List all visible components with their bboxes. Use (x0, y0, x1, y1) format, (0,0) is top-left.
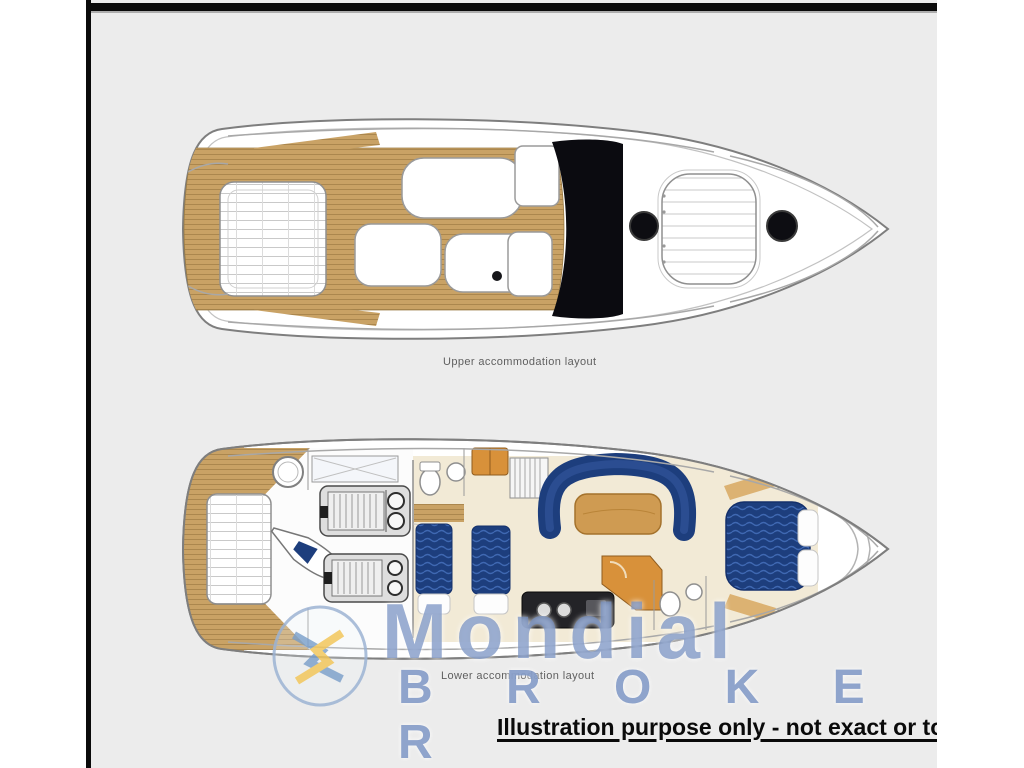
fwd-berth (726, 502, 810, 590)
brochure-panel: Upper accommodation layout (91, 0, 937, 768)
mid-toilet (660, 592, 680, 616)
aft-berth-port (416, 524, 452, 594)
deck-hatch-starboard (767, 211, 797, 241)
deck-dot (662, 260, 665, 263)
frame-top-border (91, 3, 937, 13)
deck-hatch-port (630, 212, 658, 240)
aft-toilet-tank (420, 462, 440, 471)
engine-port (320, 486, 410, 536)
brochure-page: Upper accommodation layout (0, 0, 1024, 768)
upper-deck-plan (158, 112, 894, 346)
deck-dot (662, 244, 665, 247)
lower-plan-caption: Lower accommodation layout (441, 670, 594, 682)
mid-sink (686, 584, 702, 600)
foredeck-sunpad (662, 174, 756, 284)
galley-appliance (586, 600, 606, 616)
fwd-berth-pillow (798, 550, 818, 586)
aft-berth-starboard (472, 526, 510, 594)
galley-burner (557, 603, 571, 617)
head-teak-trim (414, 504, 464, 522)
aft-berth-port-pillow (418, 594, 450, 614)
wet-bar (515, 146, 559, 206)
helm-seat (508, 232, 552, 296)
cockpit-seat (355, 224, 441, 286)
deck-dot (662, 210, 665, 213)
salon-table (575, 494, 661, 534)
bow-locker (778, 610, 804, 628)
disclaimer-text: Illustration purpose only - not exact or… (497, 714, 937, 741)
stern-sunpad (220, 182, 326, 296)
deck-dot (662, 194, 665, 197)
galley-sink (537, 603, 551, 617)
bow-locker (778, 470, 804, 488)
aft-sink (447, 463, 465, 481)
aft-toilet (420, 469, 440, 495)
aft-berth-starboard-pillow (474, 594, 508, 614)
garage-sunpad (207, 494, 271, 604)
deck-fitting (492, 271, 502, 281)
upper-plan-caption: Upper accommodation layout (443, 356, 596, 368)
cockpit-sofa (402, 158, 522, 218)
engine-starboard (324, 554, 408, 602)
lower-deck-plan (158, 432, 894, 666)
fwd-berth-pillow (798, 510, 818, 546)
